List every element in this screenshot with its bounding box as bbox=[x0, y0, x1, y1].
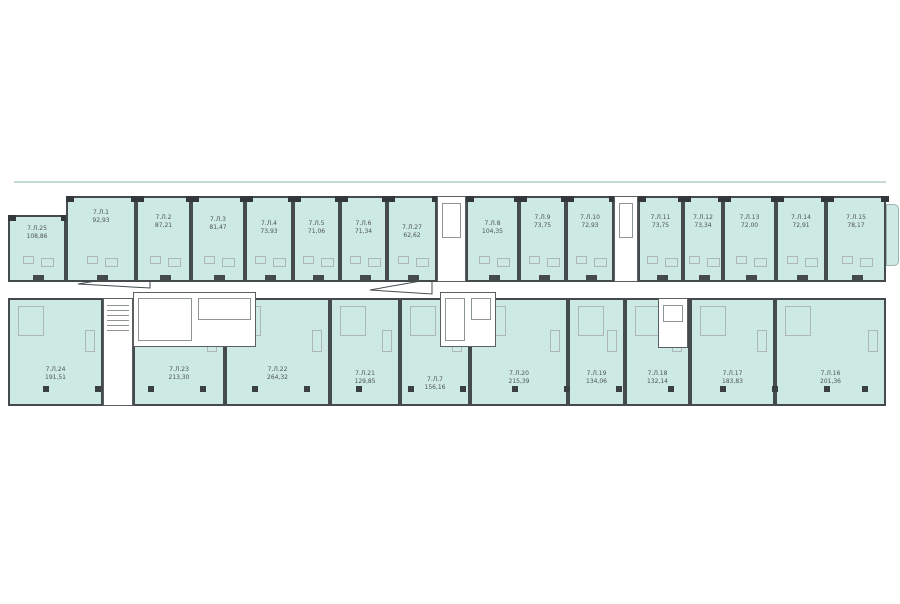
kitchen-fixture bbox=[41, 258, 54, 267]
unit-area-label: 78,17 bbox=[828, 222, 884, 230]
unit-area-label: 132,14 bbox=[627, 378, 688, 386]
wall-corner-tick bbox=[466, 196, 474, 202]
elevator-cell bbox=[445, 298, 465, 341]
unit-area-label: 73,34 bbox=[685, 222, 721, 230]
structural-column bbox=[95, 386, 101, 392]
structural-column bbox=[43, 386, 49, 392]
bathroom-fixture bbox=[255, 256, 266, 264]
utility-box bbox=[382, 330, 392, 352]
unit-label: 7.Л.16 bbox=[777, 370, 884, 378]
kitchen-fixture bbox=[105, 258, 118, 267]
kitchen-fixture bbox=[665, 258, 678, 267]
kitchen-fixture bbox=[860, 258, 873, 267]
facade-pier bbox=[489, 275, 500, 281]
facade-pier bbox=[586, 275, 597, 281]
utility-cluster bbox=[785, 306, 811, 336]
facade-pier bbox=[699, 275, 710, 281]
wall-corner-tick bbox=[519, 196, 527, 202]
unit-label: 7.Л.5 bbox=[295, 220, 338, 228]
unit-bottom-8[interactable]: 7.Л.17183,83 bbox=[690, 298, 775, 406]
unit-top-15[interactable]: 7.Л.1578,17 bbox=[826, 196, 886, 282]
unit-area-label: 73,93 bbox=[247, 228, 291, 236]
unit-label: 7.Л.7 bbox=[402, 376, 468, 384]
unit-top-3[interactable]: 7.Л.381,47 bbox=[191, 196, 245, 282]
unit-area-label: 73,75 bbox=[521, 222, 564, 230]
unit-area-label: 191,51 bbox=[10, 374, 101, 382]
unit-label: 7.Л.11 bbox=[640, 214, 681, 222]
wall-corner-tick bbox=[638, 196, 646, 202]
structural-column bbox=[668, 386, 674, 392]
bathroom-fixture bbox=[303, 256, 314, 264]
unit-label: 7.Л.14 bbox=[778, 214, 824, 222]
facade-pier bbox=[160, 275, 171, 281]
elevator-cell bbox=[198, 298, 252, 320]
unit-top-8[interactable]: 7.Л.8104,35 bbox=[466, 196, 519, 282]
unit-area-label: 73,75 bbox=[640, 222, 681, 230]
unit-top-12[interactable]: 7.Л.1273,34 bbox=[683, 196, 723, 282]
kitchen-fixture bbox=[805, 258, 818, 267]
wall-corner-tick bbox=[776, 196, 784, 202]
unit-label: 7.Л.25 bbox=[10, 225, 64, 233]
elevator-shaft bbox=[619, 203, 633, 238]
bathroom-fixture bbox=[842, 256, 853, 264]
unit-area-label: 81,47 bbox=[193, 224, 243, 232]
structural-column bbox=[148, 386, 154, 392]
unit-area-label: 87,21 bbox=[138, 222, 189, 230]
unit-bottom-9[interactable]: 7.Л.16201,36 bbox=[775, 298, 886, 406]
wall-corner-tick bbox=[826, 196, 834, 202]
kitchen-fixture bbox=[321, 258, 334, 267]
unit-label: 7.Л.24 bbox=[10, 366, 101, 374]
kitchen-fixture bbox=[222, 258, 235, 267]
unit-label: 7.Л.18 bbox=[627, 370, 688, 378]
structural-column bbox=[460, 386, 466, 392]
kitchen-fixture bbox=[416, 258, 429, 267]
elevator-shaft bbox=[663, 305, 683, 322]
unit-label: 7.Л.21 bbox=[332, 370, 398, 378]
utility-box bbox=[312, 330, 322, 352]
utility-box bbox=[550, 330, 560, 352]
unit-area-label: 71,06 bbox=[295, 228, 338, 236]
bathroom-fixture bbox=[529, 256, 540, 264]
unit-top-9[interactable]: 7.Л.973,75 bbox=[519, 196, 566, 282]
structural-column bbox=[200, 386, 206, 392]
unit-label: 7.Л.23 bbox=[135, 366, 223, 374]
wall-corner-tick bbox=[387, 196, 395, 202]
utility-box bbox=[607, 330, 617, 352]
right-terrace bbox=[886, 204, 899, 266]
structural-column bbox=[252, 386, 258, 392]
structural-column bbox=[772, 386, 778, 392]
kitchen-fixture bbox=[594, 258, 607, 267]
unit-label: 7.Л.13 bbox=[725, 214, 774, 222]
utility-cluster bbox=[700, 306, 726, 336]
facade-pier bbox=[657, 275, 668, 281]
bathroom-fixture bbox=[87, 256, 98, 264]
unit-label: 7.Л.9 bbox=[521, 214, 564, 222]
stair-tread-line bbox=[107, 305, 129, 306]
core-mid bbox=[440, 292, 496, 347]
structural-column bbox=[862, 386, 868, 392]
facade-pier bbox=[214, 275, 225, 281]
structural-column bbox=[512, 386, 518, 392]
unit-label: 7.Л.2 bbox=[138, 214, 189, 222]
balcony-rail-line bbox=[14, 181, 886, 183]
wall-corner-tick bbox=[66, 196, 74, 202]
floor-plan-canvas: 7.Л.25108,867.Л.192,937.Л.287,217.Л.381,… bbox=[0, 0, 900, 604]
unit-label: 7.Л.12 bbox=[685, 214, 721, 222]
unit-top-10[interactable]: 7.Л.1072,93 bbox=[566, 196, 614, 282]
unit-label: 7.Л.20 bbox=[472, 370, 566, 378]
unit-area-label: 264,32 bbox=[227, 374, 328, 382]
bathroom-fixture bbox=[689, 256, 700, 264]
unit-area-label: 72,00 bbox=[725, 222, 774, 230]
wall-corner-tick bbox=[566, 196, 574, 202]
unit-area-label: 71,34 bbox=[342, 228, 385, 236]
elevator-cell bbox=[138, 298, 192, 341]
kitchen-fixture bbox=[547, 258, 560, 267]
utility-cluster bbox=[578, 306, 604, 336]
top-core-b bbox=[614, 196, 638, 282]
structural-column bbox=[616, 386, 622, 392]
unit-label: 7.Л.15 bbox=[828, 214, 884, 222]
utility-box bbox=[868, 330, 878, 352]
unit-label: 7.Л.1 bbox=[68, 209, 134, 217]
unit-label: 7.Л.8 bbox=[468, 220, 517, 228]
bathroom-fixture bbox=[479, 256, 490, 264]
kitchen-fixture bbox=[273, 258, 286, 267]
wall-corner-tick bbox=[340, 196, 348, 202]
utility-cluster bbox=[410, 306, 436, 336]
core-right bbox=[658, 298, 688, 348]
unit-label: 7.Л.6 bbox=[342, 220, 385, 228]
unit-top-7[interactable]: 7.Л.2762,62 bbox=[387, 196, 437, 282]
facade-pier bbox=[360, 275, 371, 281]
unit-top-11[interactable]: 7.Л.1173,75 bbox=[638, 196, 683, 282]
unit-top-2[interactable]: 7.Л.287,21 bbox=[136, 196, 191, 282]
unit-area-label: 201,36 bbox=[777, 378, 884, 386]
facade-pier bbox=[265, 275, 276, 281]
top-core-a bbox=[437, 196, 466, 282]
unit-label: 7.Л.10 bbox=[568, 214, 612, 222]
bathroom-fixture bbox=[398, 256, 409, 264]
unit-top-4[interactable]: 7.Л.473,93 bbox=[245, 196, 293, 282]
unit-area-label: 183,83 bbox=[692, 378, 773, 386]
unit-top-13[interactable]: 7.Л.1372,00 bbox=[723, 196, 776, 282]
kitchen-fixture bbox=[368, 258, 381, 267]
bathroom-fixture bbox=[350, 256, 361, 264]
wall-corner-tick bbox=[245, 196, 253, 202]
unit-area-label: 108,86 bbox=[10, 233, 64, 241]
unit-label: 7.Л.3 bbox=[193, 216, 243, 224]
facade-pier bbox=[746, 275, 757, 281]
wall-corner-tick bbox=[293, 196, 301, 202]
unit-area-label: 134,06 bbox=[570, 378, 623, 386]
utility-cluster bbox=[18, 306, 44, 336]
unit-top-0[interactable]: 7.Л.25108,86 bbox=[8, 215, 66, 282]
facade-pier bbox=[97, 275, 108, 281]
utility-box bbox=[85, 330, 95, 352]
unit-top-5[interactable]: 7.Л.571,06 bbox=[293, 196, 340, 282]
unit-bottom-0[interactable]: 7.Л.24191,51 bbox=[8, 298, 103, 406]
bathroom-fixture bbox=[736, 256, 747, 264]
unit-area-label: 129,85 bbox=[332, 378, 398, 386]
utility-cluster bbox=[340, 306, 366, 336]
unit-label: 7.Л.22 bbox=[227, 366, 328, 374]
structural-column bbox=[564, 386, 570, 392]
facade-pier bbox=[797, 275, 808, 281]
bathroom-fixture bbox=[23, 256, 34, 264]
stair-tread-line bbox=[107, 310, 129, 311]
structural-column bbox=[356, 386, 362, 392]
unit-area-label: 104,35 bbox=[468, 228, 517, 236]
structural-column bbox=[720, 386, 726, 392]
unit-area-label: 72,91 bbox=[778, 222, 824, 230]
bathroom-fixture bbox=[204, 256, 215, 264]
unit-label: 7.Л.19 bbox=[570, 370, 623, 378]
unit-top-14[interactable]: 7.Л.1472,91 bbox=[776, 196, 826, 282]
unit-top-6[interactable]: 7.Л.671,34 bbox=[340, 196, 387, 282]
kitchen-fixture bbox=[754, 258, 767, 267]
bathroom-fixture bbox=[647, 256, 658, 264]
facade-pier bbox=[539, 275, 550, 281]
wall-corner-tick bbox=[136, 196, 144, 202]
unit-top-1[interactable]: 7.Л.192,93 bbox=[66, 196, 136, 282]
unit-label: 7.Л.4 bbox=[247, 220, 291, 228]
wall-corner-tick bbox=[881, 196, 889, 202]
wall-corner-tick bbox=[8, 215, 16, 221]
structural-column bbox=[304, 386, 310, 392]
wall-corner-tick bbox=[723, 196, 731, 202]
structural-column bbox=[408, 386, 414, 392]
unit-area-label: 72,93 bbox=[568, 222, 612, 230]
wall-corner-tick bbox=[683, 196, 691, 202]
facade-pier bbox=[33, 275, 44, 281]
facade-pier bbox=[852, 275, 863, 281]
unit-area-label: 62,62 bbox=[389, 232, 435, 240]
bathroom-fixture bbox=[576, 256, 587, 264]
elevator-cell bbox=[471, 298, 491, 320]
stair-tread-line bbox=[107, 320, 129, 321]
unit-area-label: 92,93 bbox=[68, 217, 134, 225]
stair-tread-line bbox=[107, 330, 129, 331]
unit-area-label: 213,30 bbox=[135, 374, 223, 382]
bathroom-fixture bbox=[787, 256, 798, 264]
lobby-core-left bbox=[133, 292, 256, 347]
kitchen-fixture bbox=[707, 258, 720, 267]
kitchen-fixture bbox=[168, 258, 181, 267]
elevator-shaft bbox=[442, 203, 461, 238]
utility-box bbox=[757, 330, 767, 352]
unit-bottom-3[interactable]: 7.Л.21129,85 bbox=[330, 298, 400, 406]
unit-label: 7.Л.27 bbox=[389, 224, 435, 232]
facade-pier bbox=[408, 275, 419, 281]
wall-corner-tick bbox=[191, 196, 199, 202]
unit-area-label: 215,39 bbox=[472, 378, 566, 386]
facade-pier bbox=[313, 275, 324, 281]
kitchen-fixture bbox=[497, 258, 510, 267]
unit-label: 7.Л.17 bbox=[692, 370, 773, 378]
stair-core-left bbox=[103, 298, 133, 406]
stair-tread-line bbox=[107, 325, 129, 326]
structural-column bbox=[824, 386, 830, 392]
bathroom-fixture bbox=[150, 256, 161, 264]
stair-tread-line bbox=[107, 315, 129, 316]
